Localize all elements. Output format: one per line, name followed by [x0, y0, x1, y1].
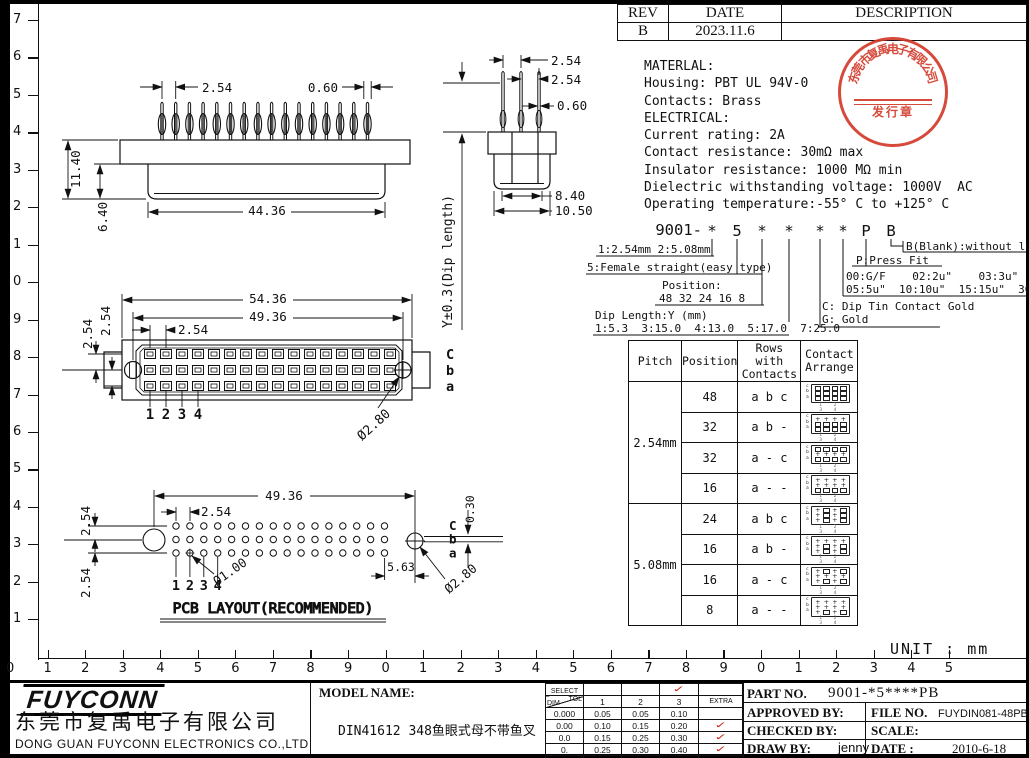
dim-height2: 6.40 — [95, 202, 110, 232]
draw-by-label: DRAW BY: — [747, 741, 811, 757]
end-view: 2.54 2.54 0.60 8.40 10.50 Y±0.3(Dip leng… — [441, 53, 593, 330]
svg-text:*: * — [815, 222, 824, 240]
svg-text:*: * — [784, 222, 793, 240]
dim-pcb-hole-big: Ø2.80 — [441, 561, 479, 597]
dim-pcb-offset: 0.30 — [463, 495, 477, 523]
datasheet-page: 76543210987654321 0123456789012345678901… — [0, 0, 1029, 758]
dim-pcb-rowpitch2: 2.54 — [78, 568, 93, 598]
dim-front-rowpitch1: 2.54 — [80, 319, 95, 349]
part-number-scheme: 9001- *5****PB — [586, 221, 1029, 335]
side-view: 2.54 0.60 11.40 6.40 44.36 — [62, 80, 410, 232]
model-name-label: MODEL NAME: — [319, 685, 415, 701]
dim-front-hole-dia: Ø2.80 — [355, 407, 394, 444]
svg-text:1: 1 — [172, 578, 180, 594]
svg-text:P: P — [861, 222, 870, 240]
scheme-wildcards: *5****PB — [707, 222, 895, 240]
tolerance-row: 0.0.250.300.40✓ — [546, 744, 744, 756]
drawing-canvas: 2.54 0.60 11.40 6.40 44.36 — [0, 0, 1029, 758]
scheme-prefix: 9001- — [655, 221, 702, 239]
pcb-layout-view: 49.36 2.54 2.54 2.54 0.30 5.63 Ø1.00 Ø2.… — [64, 488, 503, 622]
end-view-pins — [500, 72, 542, 133]
unit-label: UNIT : mm — [890, 640, 989, 658]
draw-by-value: jenny — [838, 740, 869, 755]
tolerance-row: 0.00.150.250.30✓ — [546, 732, 744, 744]
dim-end-pin: 0.60 — [557, 98, 587, 113]
svg-text:C: C — [446, 347, 454, 363]
model-name-value: DIN41612 348鱼眼式母不带鱼叉 — [338, 720, 536, 739]
checked-by-label: CHECKED BY: — [747, 723, 837, 739]
dim-height: 11.40 — [68, 150, 83, 188]
svg-text:b: b — [446, 363, 454, 379]
dim-pin-pitch: 2.54 — [202, 80, 232, 95]
pcb-layout-title: PCB LAYOUT(RECOMMENDED) — [173, 601, 374, 617]
dim-end-pitch1: 2.54 — [551, 53, 581, 68]
date-label: DATE : — [871, 741, 914, 757]
svg-text:3: 3 — [178, 407, 186, 423]
svg-text:4: 4 — [194, 407, 202, 423]
dim-end-pitch2: 2.54 — [551, 72, 581, 87]
scale-label: SCALE: — [871, 723, 919, 739]
tolerance-row: 0.000.100.150.20✓ — [546, 720, 744, 732]
pcb-hole-grid — [173, 523, 388, 558]
tolerance-row: 0.0000.050.050.10 — [546, 708, 744, 720]
dim-pcb-rowpitch1: 2.54 — [78, 506, 93, 536]
svg-text:4: 4 — [214, 578, 222, 594]
dim-end-w1: 8.40 — [555, 188, 585, 203]
file-no-label: FILE NO. — [871, 705, 927, 721]
svg-text:5: 5 — [732, 222, 741, 240]
svg-text:2: 2 — [162, 407, 170, 423]
dim-pcb-width: 49.36 — [265, 488, 303, 503]
dip-length-label: Y±0.3(Dip length) — [441, 195, 456, 328]
dim-body-width: 44.36 — [248, 203, 286, 218]
svg-text:1: 1 — [146, 407, 154, 423]
dim-front-overall: 54.36 — [249, 291, 287, 306]
file-no-value: FUYDIN081-48PB — [938, 708, 1028, 720]
svg-text:2: 2 — [186, 578, 194, 594]
dim-front-rowpitch2: 2.54 — [98, 306, 113, 336]
dim-pcb-edge: 5.63 — [387, 560, 415, 574]
company-name-en: DONG GUAN FUYCONN ELECTRONICS CO.,LTD — [15, 737, 309, 751]
tolerance-table: SELECT✓TOLDIM123EXTRA0.0000.050.050.100.… — [545, 683, 744, 758]
svg-text:*: * — [707, 222, 716, 240]
dim-pcb-pitch: 2.54 — [201, 504, 231, 519]
dim-front-holes: 49.36 — [249, 309, 287, 324]
svg-text:*: * — [838, 222, 847, 240]
svg-text:*: * — [757, 222, 766, 240]
svg-text:a: a — [449, 545, 457, 560]
fisheye-pins — [158, 102, 371, 140]
svg-text:B: B — [886, 222, 895, 240]
date-value: 2010-6-18 — [952, 741, 1006, 757]
part-no-label: PART NO. — [747, 686, 807, 702]
dim-front-pitch: 2.54 — [178, 322, 208, 337]
dim-pin-width: 0.60 — [308, 80, 338, 95]
dim-end-w2: 10.50 — [555, 203, 593, 218]
part-no-value: 9001-*5****PB — [828, 685, 939, 702]
company-name-cn: 东莞市复禹电子有限公司 — [15, 706, 279, 736]
svg-text:a: a — [446, 379, 454, 395]
front-view: 54.36 49.36 2.54 2.54 2.54 Ø2.80 Cba1234 — [62, 291, 454, 444]
svg-text:3: 3 — [200, 578, 208, 594]
approved-by-label: APPROVED BY: — [747, 705, 844, 721]
contact-grid — [145, 350, 396, 391]
